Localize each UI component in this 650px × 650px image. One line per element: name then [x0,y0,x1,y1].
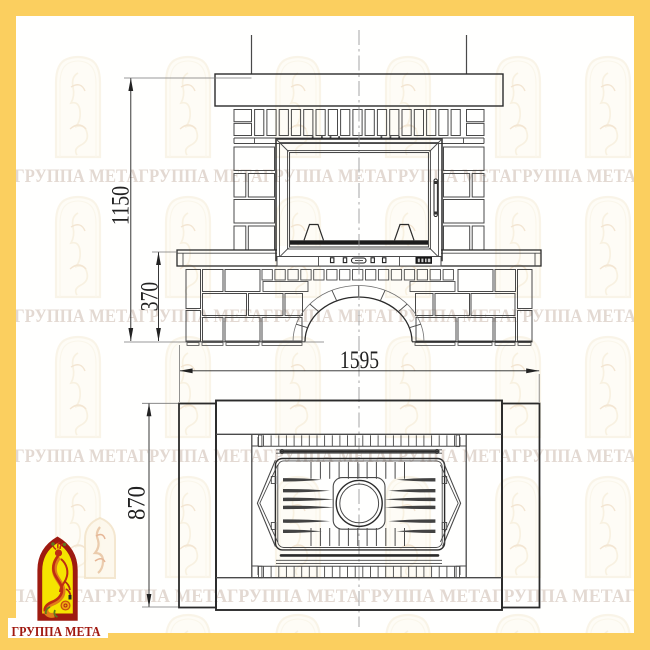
svg-text:870: 870 [124,486,151,520]
svg-text:ГРУППА МЕТА: ГРУППА МЕТА [12,625,102,640]
svg-text:ГРУППА МЕТАГРУППА МЕТАГРУППА М: ГРУППА МЕТАГРУППА МЕТАГРУППА МЕТАГРУППА … [14,446,636,467]
svg-text:ГРУППА МЕТАГРУППА МЕТАГРУППА М: ГРУППА МЕТАГРУППА МЕТАГРУППА МЕТАГРУППА … [14,166,636,187]
svg-text:ГРУППА МЕТАГРУППА МЕТАГРУППА М: ГРУППА МЕТАГРУППА МЕТАГРУППА МЕТАГРУППА … [14,306,636,327]
svg-text:ГРУППА МЕТАГРУППА МЕТАГРУППА М: ГРУППА МЕТАГРУППА МЕТАГРУППА МЕТАГРУППА … [0,586,636,607]
svg-text:370: 370 [137,282,164,311]
svg-text:1150: 1150 [108,186,135,225]
svg-text:1595: 1595 [340,347,379,374]
